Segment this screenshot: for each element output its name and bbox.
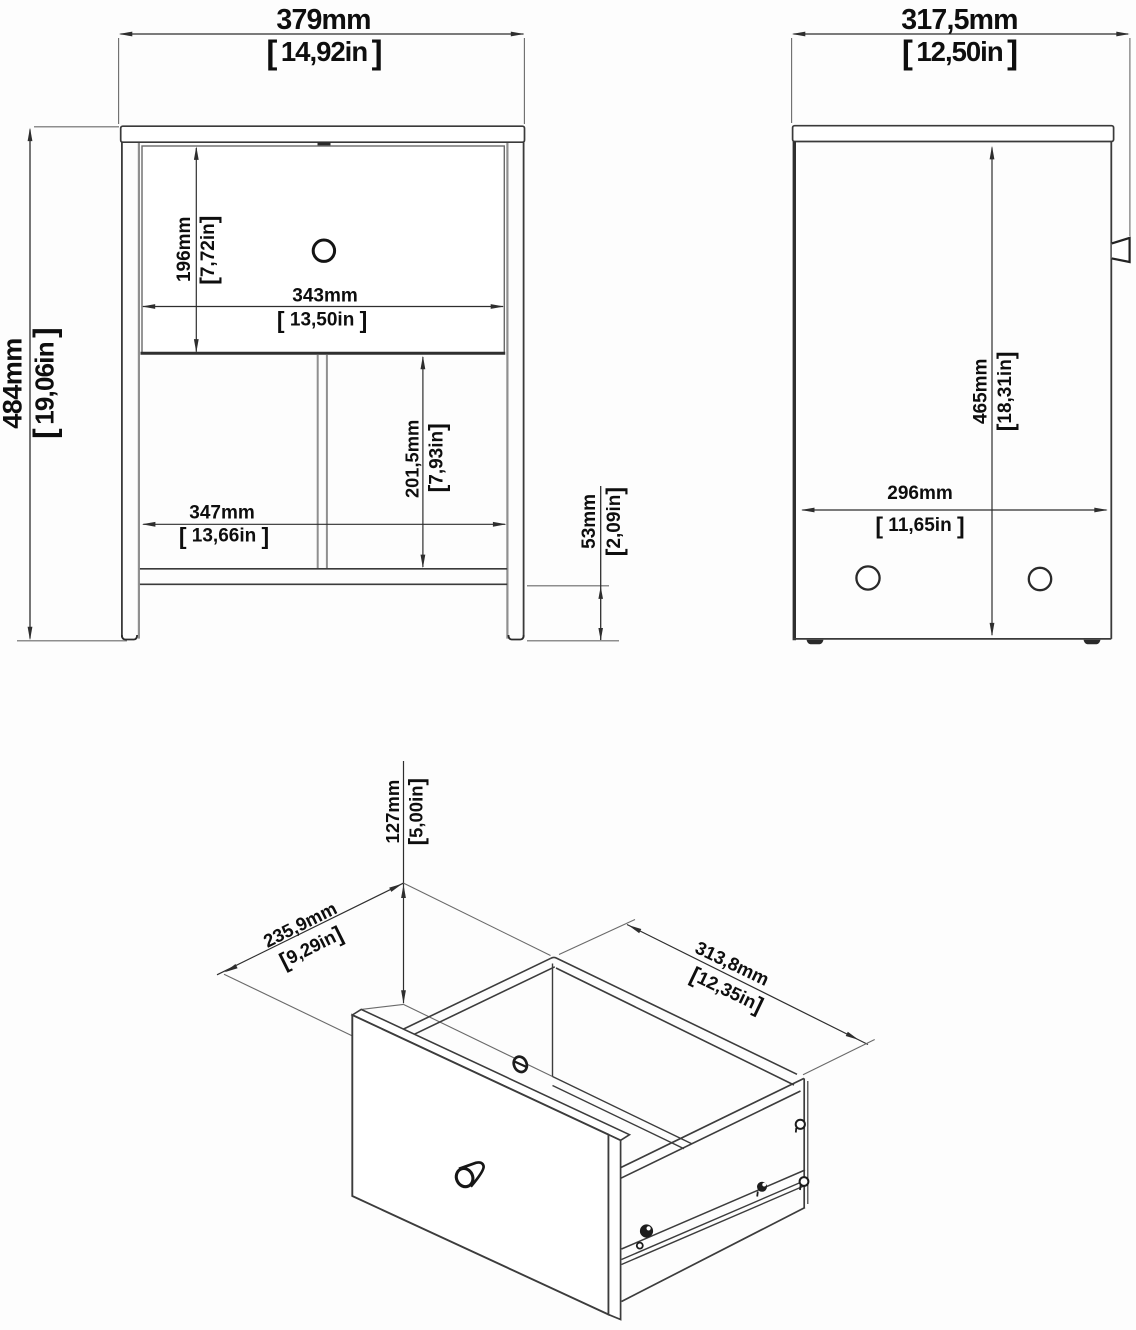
svg-text:[18,31in]: [18,31in]	[992, 352, 1018, 432]
svg-text:[7,93in]: [7,93in]	[424, 423, 450, 492]
svg-text:[ 12,50in ]: [ 12,50in ]	[902, 33, 1017, 70]
svg-text:379mm: 379mm	[276, 4, 370, 36]
svg-text:[ 14,92in ]: [ 14,92in ]	[266, 33, 381, 70]
svg-text:201,5mm: 201,5mm	[401, 420, 422, 498]
svg-text:[2,09in]: [2,09in]	[601, 487, 627, 556]
svg-text:317,5mm: 317,5mm	[901, 4, 1017, 36]
svg-text:[ 13,66in ]: [ 13,66in ]	[179, 523, 269, 549]
svg-text:343mm: 343mm	[292, 285, 358, 306]
svg-text:127mm: 127mm	[382, 780, 403, 844]
svg-text:[5,00in]: [5,00in]	[404, 778, 429, 845]
svg-text:[7,72in]: [7,72in]	[196, 216, 222, 285]
svg-text:465mm: 465mm	[971, 359, 992, 425]
svg-text:196mm: 196mm	[174, 217, 195, 282]
svg-text:296mm: 296mm	[887, 483, 953, 504]
svg-text:[ 19,06in ]: [ 19,06in ]	[27, 328, 63, 439]
svg-text:347mm: 347mm	[189, 502, 255, 523]
svg-text:[ 13,50in ]: [ 13,50in ]	[277, 307, 367, 333]
svg-text:484mm: 484mm	[0, 338, 28, 429]
svg-text:[ 11,65in ]: [ 11,65in ]	[875, 513, 964, 539]
svg-text:53mm: 53mm	[579, 494, 600, 549]
